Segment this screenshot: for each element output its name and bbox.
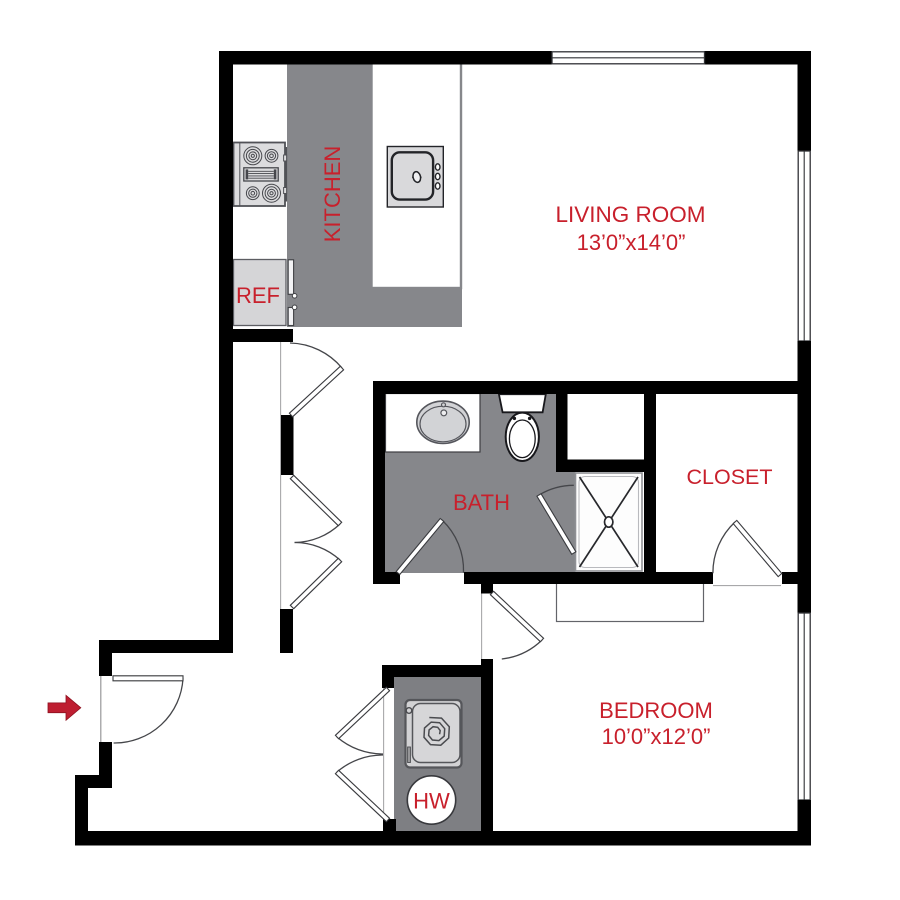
svg-text:CLOSET: CLOSET: [686, 465, 772, 489]
svg-text:BATH: BATH: [453, 490, 510, 515]
svg-text:13’0”x14’0”: 13’0”x14’0”: [577, 230, 686, 255]
svg-text:10’0”x12’0”: 10’0”x12’0”: [602, 724, 711, 749]
svg-text:KITCHEN: KITCHEN: [320, 146, 345, 243]
svg-text:LIVING ROOM: LIVING ROOM: [555, 202, 705, 227]
svg-text:REF: REF: [236, 283, 280, 308]
svg-text:HW: HW: [413, 789, 450, 814]
svg-text:BEDROOM: BEDROOM: [599, 698, 713, 723]
